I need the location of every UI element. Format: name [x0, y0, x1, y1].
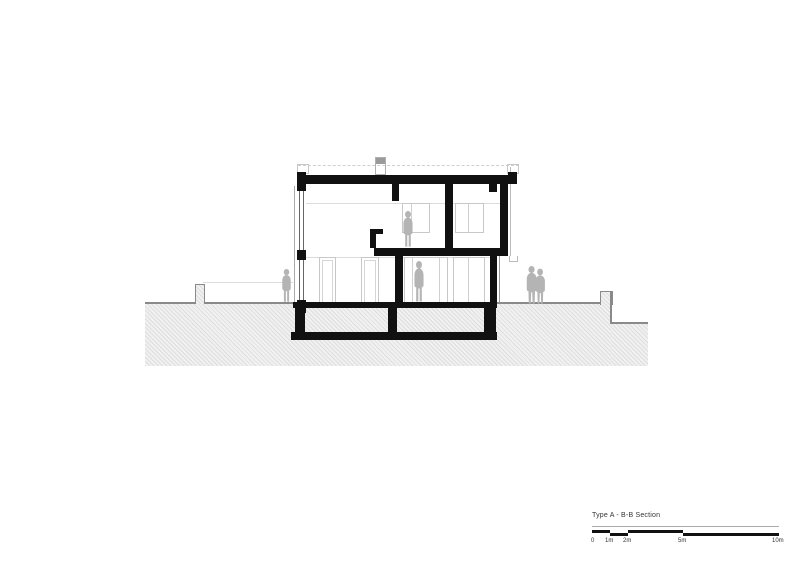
chimney [375, 157, 386, 175]
scale-label-2m: 2m [623, 538, 631, 544]
slab-edge-outline-right [509, 256, 518, 262]
lower-partition-wall [395, 256, 403, 303]
section-drawing-canvas: Type A - B-B Section 0 1m 2m 5m 10m [0, 0, 800, 565]
lower-right-wall [490, 256, 497, 303]
left-wall-top-block [297, 184, 306, 191]
foundation-slab [291, 332, 497, 340]
guardrail-wall [370, 234, 376, 248]
roof-dashed-line [298, 165, 519, 166]
upper-partition-wall [445, 184, 453, 248]
downstand-beam-right [489, 184, 497, 192]
title-rule [592, 526, 779, 527]
drawing-title: Type A - B-B Section [592, 512, 782, 519]
lower-right-glazed-door-2 [453, 257, 485, 305]
scale-label-1m: 1m [605, 538, 613, 544]
scale-seg-0-1 [592, 530, 610, 533]
chimney-cap [376, 158, 385, 164]
scale-label-0: 0 [591, 538, 594, 544]
left-glazing-outer-line [294, 186, 295, 302]
title-block: Type A - B-B Section 0 1m 2m 5m 10m [592, 512, 782, 519]
lower-left-door-2 [361, 257, 379, 304]
downstand-beam-left [392, 184, 399, 201]
scale-label-10m: 10m [772, 538, 784, 544]
ground-floor-slab [293, 302, 497, 308]
lower-left-door-1 [319, 257, 336, 304]
upper-window-2 [455, 203, 484, 233]
ground-line-lower-right [611, 322, 648, 324]
roof-slab [297, 175, 517, 184]
earth-hatch-right-lower [611, 324, 648, 366]
lower-right-wall-face-line [499, 256, 500, 303]
scale-label-5m: 5m [678, 538, 686, 544]
left-glazing-line-2 [303, 190, 304, 302]
foundation-wall-right [484, 306, 496, 334]
roof-parapet-left [297, 172, 306, 176]
scale-seg-1-2 [610, 533, 628, 536]
person-upper-level [401, 211, 415, 248]
person-outside-left [280, 269, 293, 303]
ground-step-face [610, 291, 612, 324]
left-wall-spandrel [297, 250, 306, 260]
garden-wall-post [195, 284, 205, 304]
roof-parapet-right [508, 172, 517, 176]
person-ground-floor [412, 261, 426, 303]
foundation-wall-mid [388, 306, 397, 334]
upper-right-wall [500, 184, 508, 250]
couple-outside-right [524, 266, 548, 305]
left-glazing-line-1 [299, 190, 300, 302]
scale-seg-2-5 [628, 530, 683, 533]
scale-seg-5-10 [683, 533, 779, 536]
upper-floor-slab [374, 248, 508, 256]
lower-right-glazed-door-1 [404, 257, 448, 305]
